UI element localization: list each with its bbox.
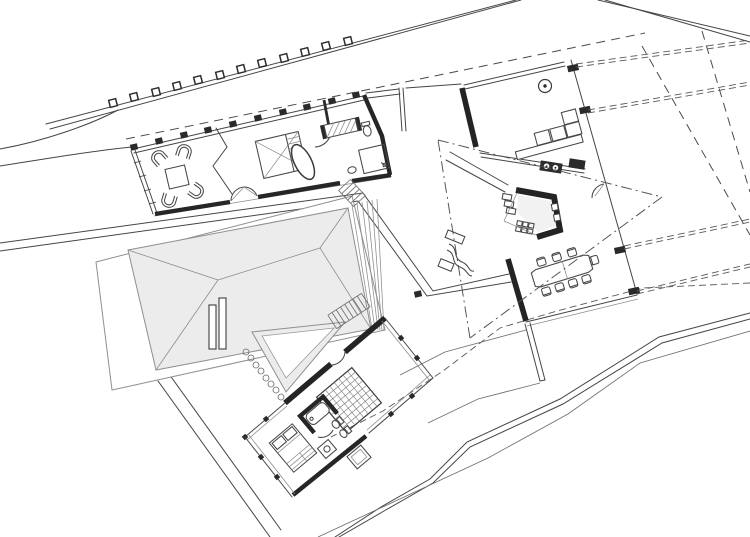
link-corridor xyxy=(366,84,461,131)
sink xyxy=(347,166,357,174)
dining-chair xyxy=(567,247,577,257)
site-line xyxy=(605,0,750,42)
pergola-colonnade xyxy=(46,0,750,129)
path-edge xyxy=(400,330,526,375)
beam-lines xyxy=(576,40,750,294)
pavilion-top-wall xyxy=(465,66,565,89)
lounge-seating xyxy=(149,143,206,209)
dining-set xyxy=(528,242,604,298)
garden-path-edge xyxy=(169,374,281,530)
hip-roof xyxy=(128,208,371,370)
east-door xyxy=(592,184,604,198)
living-pavilion xyxy=(438,60,640,381)
roof-chimney xyxy=(209,305,216,349)
dining-chair xyxy=(555,282,565,292)
dining-chair xyxy=(589,255,599,265)
floor-plan-canvas xyxy=(0,0,750,537)
wing-se-wall xyxy=(293,375,433,495)
pavilion-west-wall xyxy=(462,88,476,147)
kitchen-cabinets xyxy=(502,193,516,214)
overhang-dashed-line xyxy=(642,46,750,235)
dining-chair xyxy=(536,257,546,267)
toilet xyxy=(361,121,372,137)
lounge-chair xyxy=(187,182,206,201)
dining-chair xyxy=(568,278,578,288)
sink-counter xyxy=(317,440,336,459)
dining-chair xyxy=(551,252,561,262)
double-door xyxy=(231,187,257,201)
dining-chair xyxy=(541,286,551,296)
sofa xyxy=(509,109,584,160)
path-edge xyxy=(428,383,540,423)
vanity xyxy=(320,117,362,140)
courtyard-roof xyxy=(96,196,385,400)
site-line xyxy=(598,0,750,36)
roof-chimney xyxy=(219,298,226,349)
overhang-dashed-line xyxy=(702,31,750,192)
kitchen xyxy=(502,190,560,237)
left-wing xyxy=(130,84,461,216)
round-column-dot xyxy=(543,84,546,87)
pergola-columns xyxy=(109,37,353,108)
walkway-post xyxy=(414,290,422,297)
site-road-curve xyxy=(0,110,118,149)
garden-path-edge xyxy=(158,381,270,537)
contour-line xyxy=(339,319,750,537)
lounge-chair xyxy=(149,148,168,167)
bed-guest xyxy=(269,424,316,472)
bathroom-left-wing xyxy=(315,100,389,174)
site-road-curve xyxy=(0,147,132,166)
door-arc xyxy=(332,352,345,365)
door-arc xyxy=(318,430,333,437)
floor-plan-page xyxy=(0,0,750,537)
lounge-chair xyxy=(160,193,177,209)
wing-west-window-wall xyxy=(131,150,157,214)
lounge-chair xyxy=(176,143,193,159)
entry-ramp xyxy=(446,152,508,192)
dining-chair xyxy=(581,274,591,284)
lounge-table xyxy=(165,165,189,189)
closet-zigzag-partition xyxy=(213,128,232,194)
